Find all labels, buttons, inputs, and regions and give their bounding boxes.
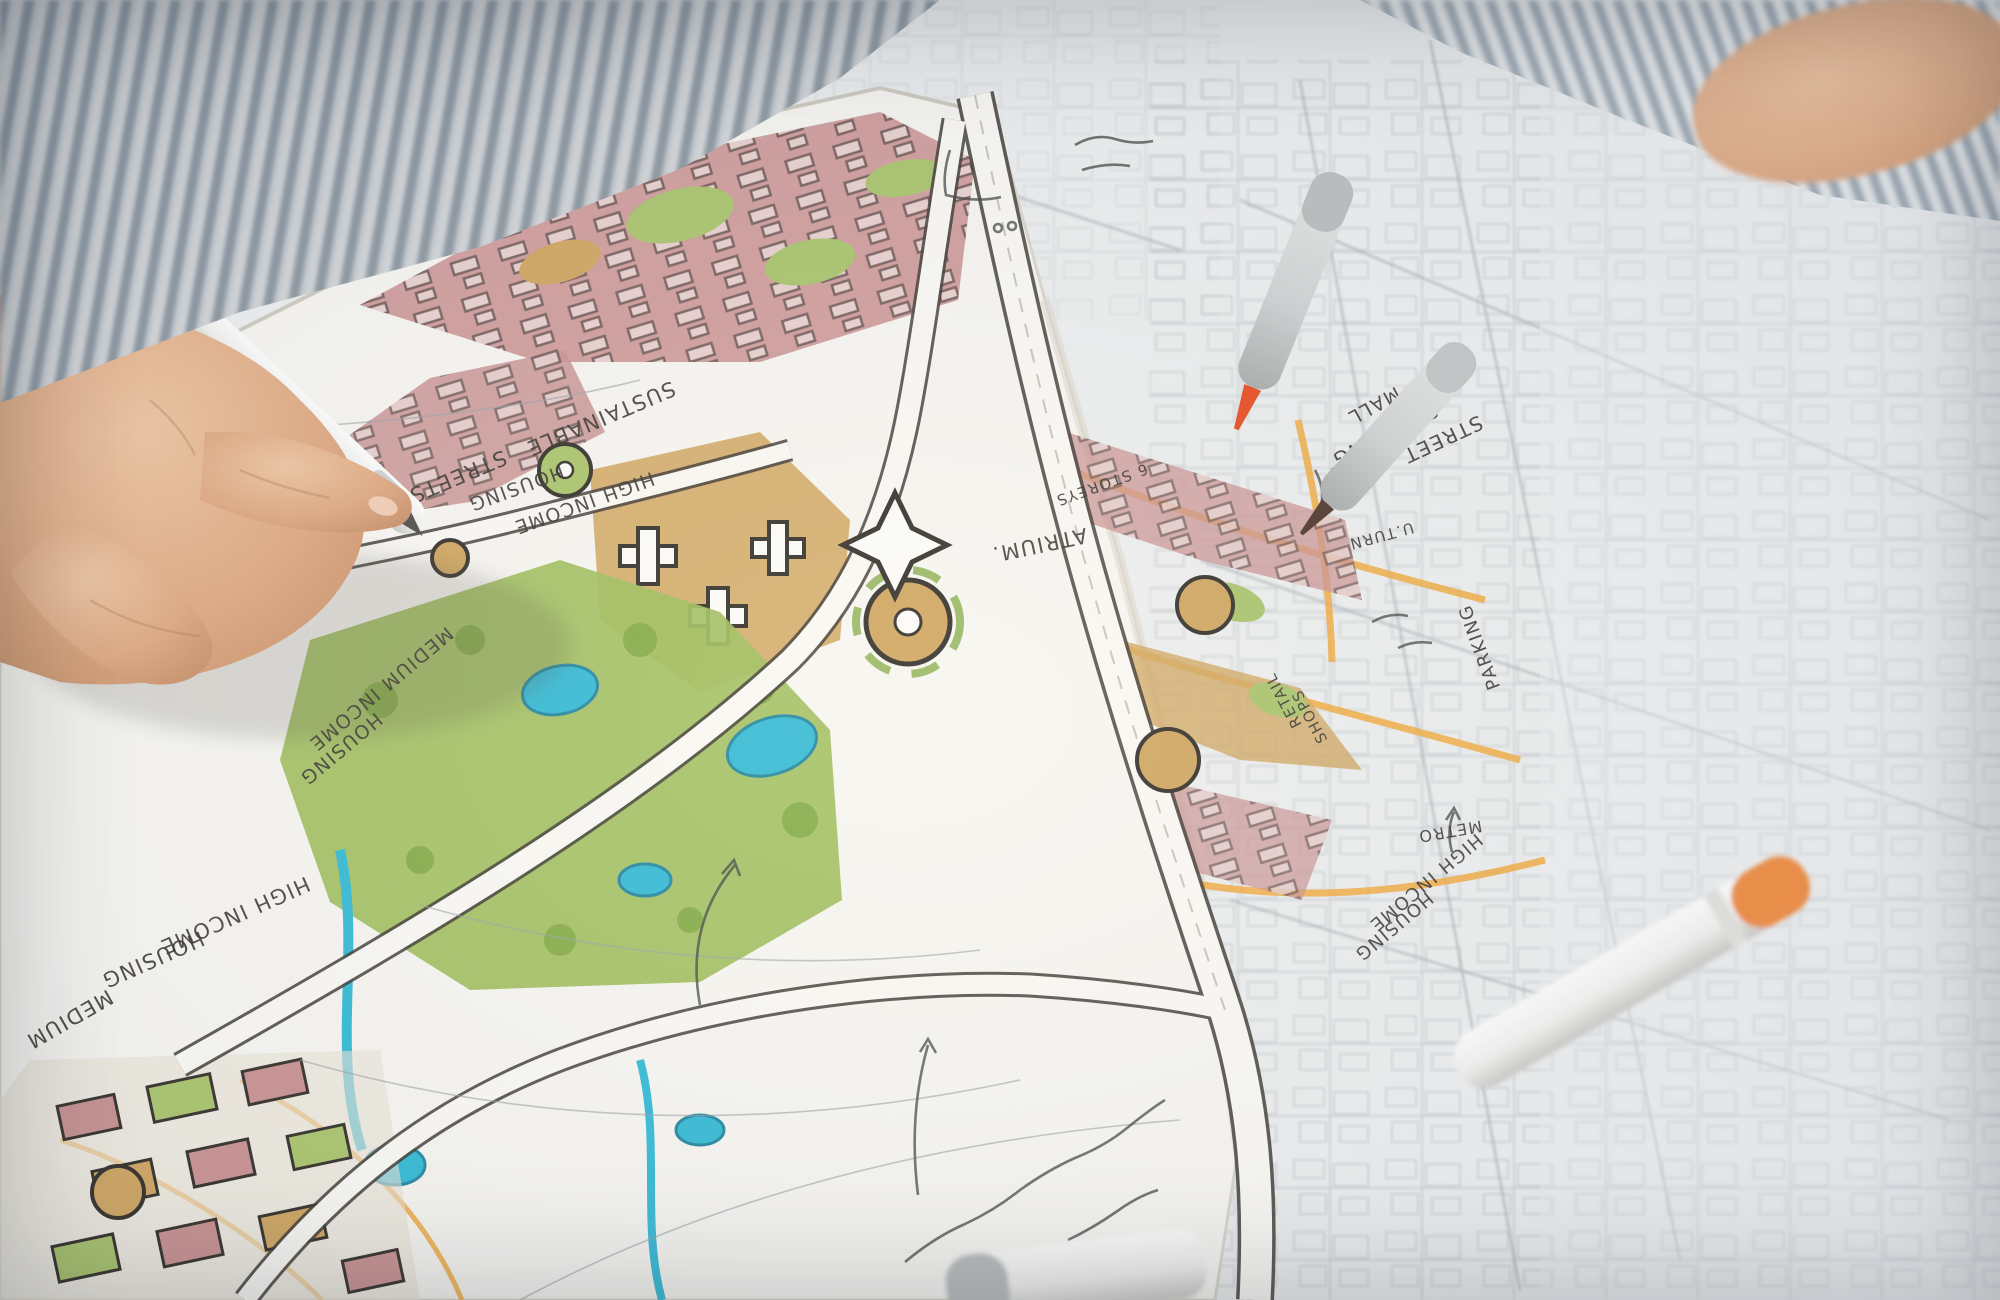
photo-scene: SUSTAINABLE STREETS HIGH INCOME HOUSING … [0,0,2000,1300]
